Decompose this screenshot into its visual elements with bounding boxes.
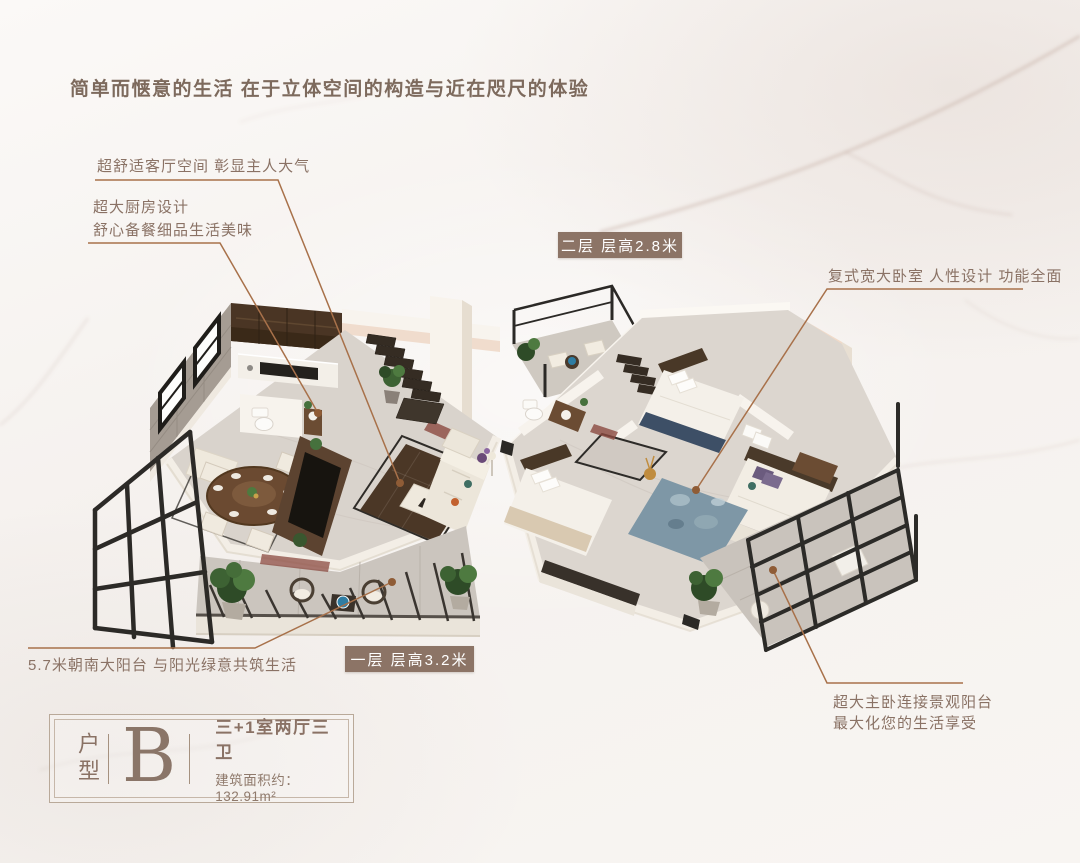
first-floor-badge: 一层 层高3.2米 xyxy=(345,646,474,672)
callout-living-room-text: 超舒适客厅空间 彰显主人大气 xyxy=(97,158,310,175)
callout-master-balcony: 超大主卧连接景观阳台 最大化您的生活享受 xyxy=(833,692,993,734)
leader-dot-south-balcony xyxy=(388,578,396,586)
leader-dot-living-room xyxy=(396,479,404,487)
unit-details: 三+1室两厅三卫 建筑面积约：132.91m² xyxy=(215,713,348,804)
unit-category-label: 户型 xyxy=(75,732,97,786)
kitchen-cabinets xyxy=(231,303,342,351)
leader-dot-bedroom xyxy=(692,486,700,494)
unit-layout-text: 三+1室两厅三卫 xyxy=(215,713,348,763)
callout-bedroom-text: 复式宽大卧室 人性设计 功能全面 xyxy=(828,268,1062,285)
second-floor-plan xyxy=(500,286,916,650)
unit-info-card-inner: 户型 B 三+1室两厅三卫 建筑面积约：132.91m² xyxy=(54,719,349,798)
callout-bedroom: 复式宽大卧室 人性设计 功能全面 xyxy=(828,266,1062,288)
card-divider xyxy=(108,734,109,784)
callout-south-balcony: 5.7米朝南大阳台 与阳光绿意共筑生活 xyxy=(28,655,297,677)
first-floor-plan xyxy=(95,296,500,647)
west-lattice-frame xyxy=(95,432,212,647)
second-floor-badge-text: 二层 层高2.8米 xyxy=(561,235,679,256)
callout-master-balcony-line2: 最大化您的生活享受 xyxy=(833,713,993,734)
page: 简单而惬意的生活 在于立体空间的构造与近在咫尺的体验 超舒适客厅空间 彰显主人大… xyxy=(0,0,1080,863)
leader-dot-master-balcony xyxy=(769,566,777,574)
callout-living-room: 超舒适客厅空间 彰显主人大气 xyxy=(97,156,310,178)
page-title: 简单而惬意的生活 在于立体空间的构造与近在咫尺的体验 xyxy=(70,74,589,101)
unit-letter: B xyxy=(120,725,178,788)
leader-dot-kitchen xyxy=(314,409,322,417)
unit-info-card: 户型 B 三+1室两厅三卫 建筑面积约：132.91m² xyxy=(49,714,354,803)
callout-kitchen-line2: 舒心备餐细品生活美味 xyxy=(93,219,253,242)
callout-master-balcony-line1: 超大主卧连接景观阳台 xyxy=(833,692,993,713)
unit-area-text: 建筑面积约：132.91m² xyxy=(215,769,348,804)
callout-south-balcony-text: 5.7米朝南大阳台 与阳光绿意共筑生活 xyxy=(28,657,297,674)
first-floor-badge-text: 一层 层高3.2米 xyxy=(350,649,468,670)
callout-kitchen-line1: 超大厨房设计 xyxy=(93,196,253,219)
second-floor-badge: 二层 层高2.8米 xyxy=(558,232,682,258)
callout-kitchen: 超大厨房设计 舒心备餐细品生活美味 xyxy=(93,196,253,242)
card-divider xyxy=(189,734,190,784)
